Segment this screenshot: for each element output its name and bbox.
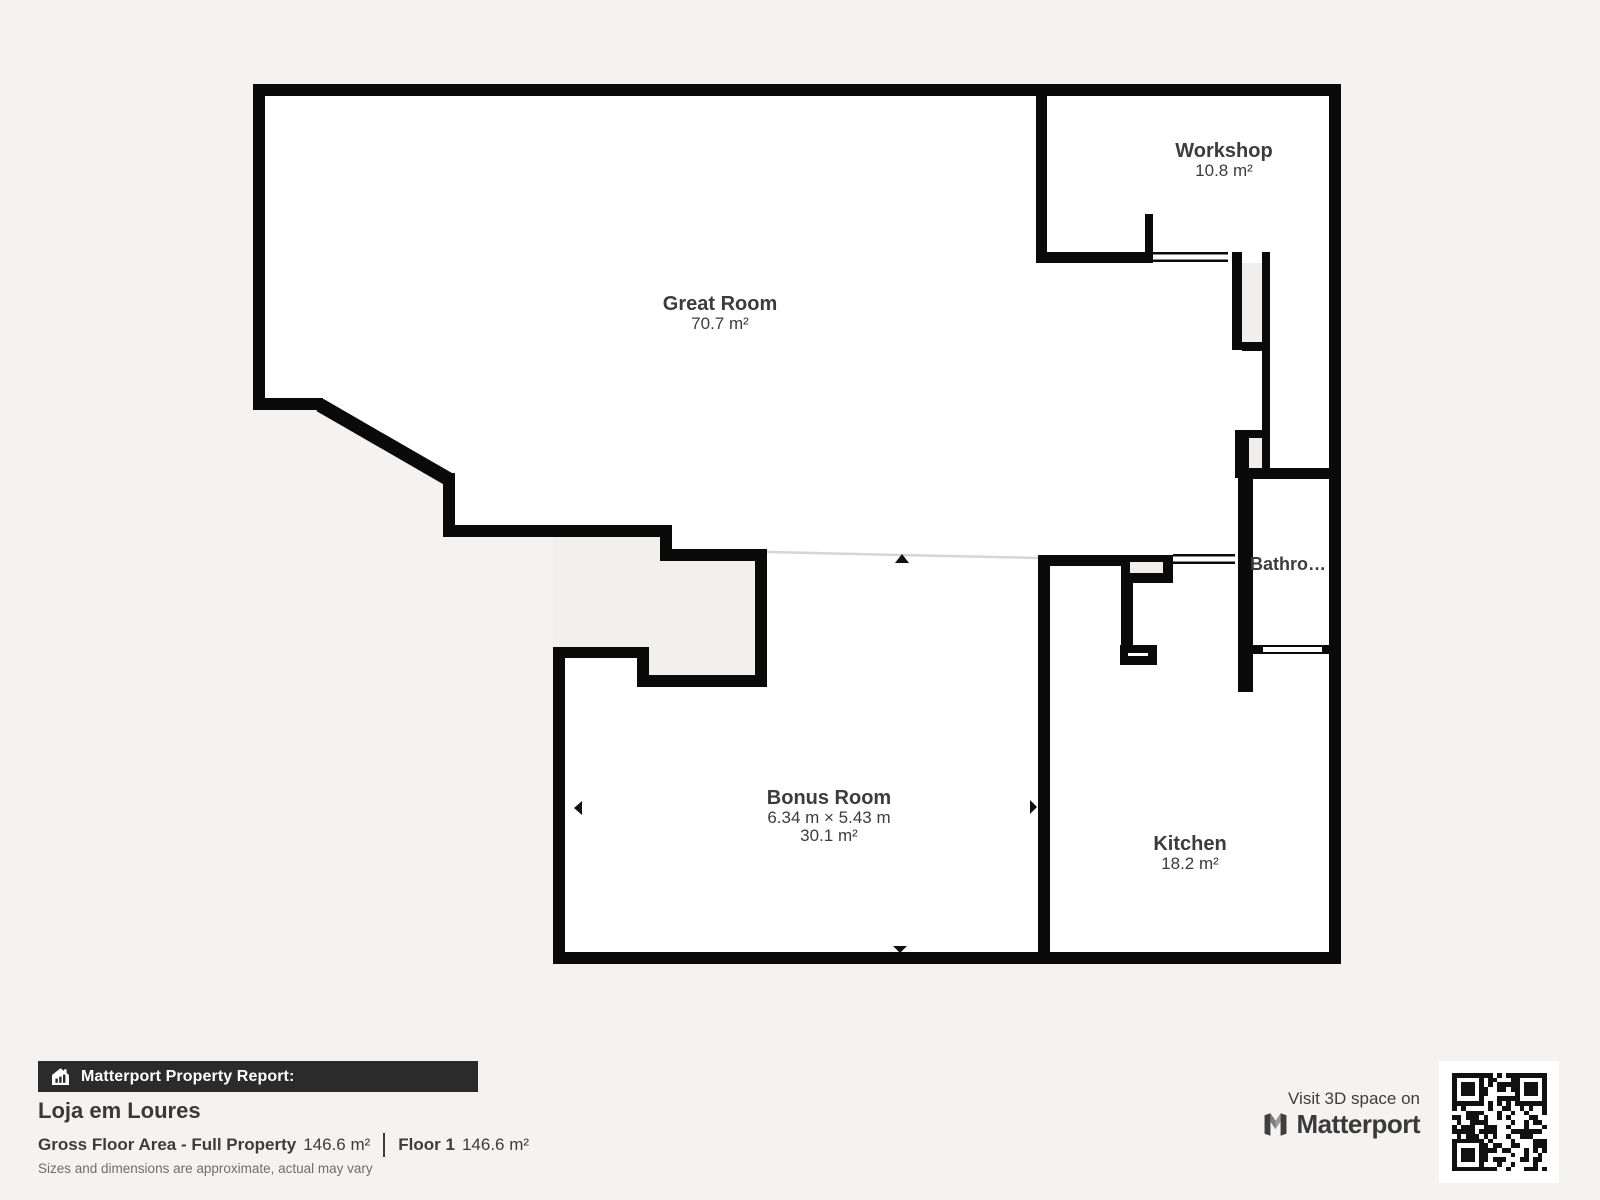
matterport-wordmark: Matterport [1296, 1109, 1420, 1140]
gross-floor-area-value: 146.6 m² [303, 1135, 370, 1155]
room-label-great-room: Great Room [663, 293, 777, 315]
qr-code [1452, 1073, 1547, 1171]
matterport-logo-icon [1262, 1111, 1289, 1138]
room-label-bathroom: Bathro… [1250, 554, 1326, 574]
floorplan-report-page: { "plan": { "wall_color": "#0a0a0a", "ba… [0, 0, 1600, 1200]
room-dimensions-bonus-room: 6.34 m × 5.43 m [767, 808, 890, 827]
gross-floor-area-label: Gross Floor Area - Full Property [38, 1135, 296, 1155]
room-area-workshop: 10.8 m² [1195, 161, 1253, 180]
disclaimer-text: Sizes and dimensions are approximate, ac… [38, 1161, 373, 1176]
floor-label: Floor 1 [398, 1135, 455, 1155]
qr-code-panel [1439, 1061, 1559, 1183]
area-stats-line: Gross Floor Area - Full Property 146.6 m… [38, 1133, 529, 1157]
visit-3d-text: Visit 3D space on [1230, 1089, 1420, 1109]
room-label-kitchen: Kitchen [1153, 833, 1226, 855]
matterport-brand: Matterport [1230, 1109, 1420, 1139]
house-report-icon [50, 1066, 71, 1087]
room-label-workshop: Workshop [1175, 140, 1272, 162]
floorplan-footprint [253, 84, 1341, 964]
report-header-bar: Matterport Property Report: [38, 1061, 478, 1092]
property-name: Loja em Loures [38, 1098, 201, 1124]
floor-value: 146.6 m² [462, 1135, 529, 1155]
floorplan-canvas: Great Room 70.7 m² Workshop 10.8 m² Bath… [0, 0, 1600, 1200]
room-area-kitchen: 18.2 m² [1161, 854, 1219, 873]
stats-separator [383, 1133, 385, 1157]
room-area-great-room: 70.7 m² [691, 314, 749, 333]
report-bar-label: Matterport Property Report: [81, 1068, 294, 1086]
room-label-bonus-room: Bonus Room [767, 787, 891, 809]
room-area-bonus-room: 30.1 m² [800, 826, 858, 845]
